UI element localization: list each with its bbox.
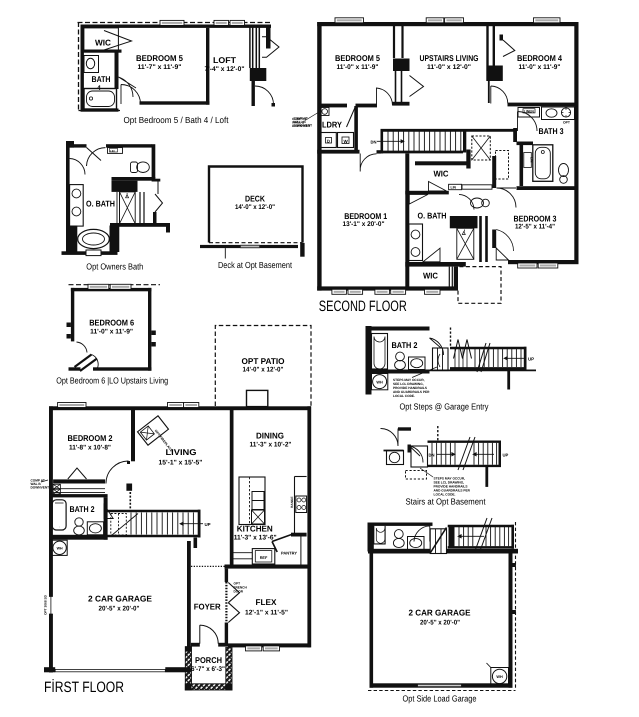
svg-text:BEDROOM 1: BEDROOM 1	[344, 211, 387, 221]
svg-text:LOCAL CODE.: LOCAL CODE.	[393, 394, 415, 398]
svg-text:DOWNVENT: DOWNVENT	[294, 124, 313, 128]
svg-text:OPT: OPT	[563, 121, 571, 125]
svg-text:O. BATH: O. BATH	[418, 211, 447, 221]
svg-text:2 CAR GARAGE: 2 CAR GARAGE	[88, 594, 152, 604]
svg-text:UP: UP	[528, 357, 534, 362]
svg-text:DOWNVENT: DOWNVENT	[31, 486, 50, 490]
svg-text:11'-0" x 11'-9": 11'-0" x 11'-9"	[519, 64, 561, 71]
svg-text:DINING: DINING	[256, 431, 284, 441]
svg-text:UP: UP	[205, 522, 211, 527]
svg-text:DECK: DECK	[245, 194, 265, 204]
svg-text:WIC: WIC	[434, 169, 449, 179]
svg-text:DOOR: DOOR	[234, 590, 244, 594]
svg-text:PORCH: PORCH	[195, 655, 222, 665]
svg-text:BEDROOM 5: BEDROOM 5	[136, 53, 183, 63]
svg-text:BATH 2: BATH 2	[70, 504, 95, 514]
svg-text:FLEX: FLEX	[256, 597, 277, 607]
svg-text:O. BATH: O. BATH	[86, 199, 115, 209]
svg-text:BATH: BATH	[92, 74, 111, 84]
svg-text:Stairs at Opt Basement: Stairs at Opt Basement	[406, 497, 486, 507]
svg-text:WH: WH	[496, 675, 503, 679]
svg-text:Opt Side Load Garage: Opt Side Load Garage	[403, 694, 477, 704]
svg-text:2 CAR GARAGE: 2 CAR GARAGE	[409, 608, 471, 618]
svg-text:12'-5" x 11'-4": 12'-5" x 11'-4"	[515, 224, 555, 231]
svg-text:BATH 3: BATH 3	[539, 126, 564, 136]
svg-text:14'-0" x 12'-0": 14'-0" x 12'-0"	[243, 367, 284, 374]
svg-text:BEDROOM 3: BEDROOM 3	[514, 213, 557, 223]
svg-text:LIN: LIN	[451, 186, 457, 190]
svg-text:DN: DN	[429, 453, 435, 458]
svg-text:Opt Owners Bath: Opt Owners Bath	[86, 262, 143, 272]
svg-text:Opt Steps @ Garage Entry: Opt Steps @ Garage Entry	[400, 401, 489, 411]
svg-text:11'-3" x 10'-2": 11'-3" x 10'-2"	[250, 442, 292, 449]
svg-text:20'-5" x 20'-0": 20'-5" x 20'-0"	[99, 606, 140, 613]
svg-text:FOYER: FOYER	[194, 602, 221, 612]
svg-text:FİRST FLOOR: FİRST FLOOR	[44, 678, 124, 696]
svg-text:11'-0" x 11'-9": 11'-0" x 11'-9"	[90, 328, 133, 335]
svg-text:KITCHEN: KITCHEN	[237, 524, 273, 534]
svg-text:Deck at Opt Basement: Deck at Opt Basement	[218, 260, 292, 270]
svg-text:UPSTAIRS LIVING: UPSTAIRS LIVING	[420, 53, 479, 63]
svg-text:OPT PATIO: OPT PATIO	[242, 356, 285, 366]
svg-text:7'-4" x 12'-0": 7'-4" x 12'-0"	[205, 66, 245, 73]
svg-text:OPT 3068 SD: OPT 3068 SD	[44, 594, 48, 615]
svg-text:11'-3" x 13'-6": 11'-3" x 13'-6"	[234, 535, 277, 542]
svg-text:PANTRY: PANTRY	[281, 551, 297, 556]
svg-text:11'-7" x 11'-9": 11'-7" x 11'-9"	[138, 64, 182, 71]
svg-text:11'-0" x 11'-9": 11'-0" x 11'-9"	[337, 64, 379, 71]
svg-text:WIC: WIC	[423, 271, 438, 281]
svg-text:15'-1" x 15'-5": 15'-1" x 15'-5"	[159, 460, 203, 467]
svg-text:LDRY: LDRY	[322, 120, 342, 130]
svg-text:BEDROOM 6: BEDROOM 6	[89, 317, 134, 327]
svg-text:11'-0" x 12'-0": 11'-0" x 12'-0"	[427, 64, 471, 71]
svg-text:REF: REF	[260, 556, 268, 560]
svg-text:BATH 2: BATH 2	[392, 340, 418, 350]
svg-text:BEDROOM 2: BEDROOM 2	[68, 433, 113, 443]
svg-text:WH: WH	[57, 547, 63, 551]
svg-text:WIC: WIC	[95, 38, 111, 48]
svg-text:DN: DN	[371, 139, 377, 144]
svg-text:Opt Bedroom 6 |LO Upstairs Liv: Opt Bedroom 6 |LO Upstairs Living	[56, 376, 168, 386]
svg-text:WH: WH	[376, 380, 383, 384]
svg-text:Opt Bedroom 5 / Bath 4 / Loft: Opt Bedroom 5 / Bath 4 / Loft	[124, 115, 229, 125]
svg-text:12'-1" x 11'-5": 12'-1" x 11'-5"	[245, 610, 288, 617]
svg-text:14'-0" x 12'-0": 14'-0" x 12'-0"	[235, 204, 275, 211]
svg-text:20'-5" x 20'-0": 20'-5" x 20'-0"	[420, 620, 460, 627]
svg-text:D: D	[327, 139, 330, 144]
svg-text:BEDROOM 4: BEDROOM 4	[517, 53, 562, 63]
svg-text:13'-1" x 20'-0": 13'-1" x 20'-0"	[343, 221, 385, 228]
svg-text:11'-8" x 10'-8": 11'-8" x 10'-8"	[69, 445, 111, 452]
svg-text:UP: UP	[503, 453, 509, 458]
svg-text:6'-7" x 6'-3": 6'-7" x 6'-3"	[191, 666, 225, 673]
svg-text:LIN: LIN	[110, 149, 115, 153]
svg-text:SECOND FLOOR: SECOND FLOOR	[319, 298, 407, 315]
svg-text:BEDROOM 5: BEDROOM 5	[335, 53, 380, 63]
svg-text:RANGE: RANGE	[290, 496, 294, 508]
svg-text:LOFT: LOFT	[213, 55, 237, 65]
